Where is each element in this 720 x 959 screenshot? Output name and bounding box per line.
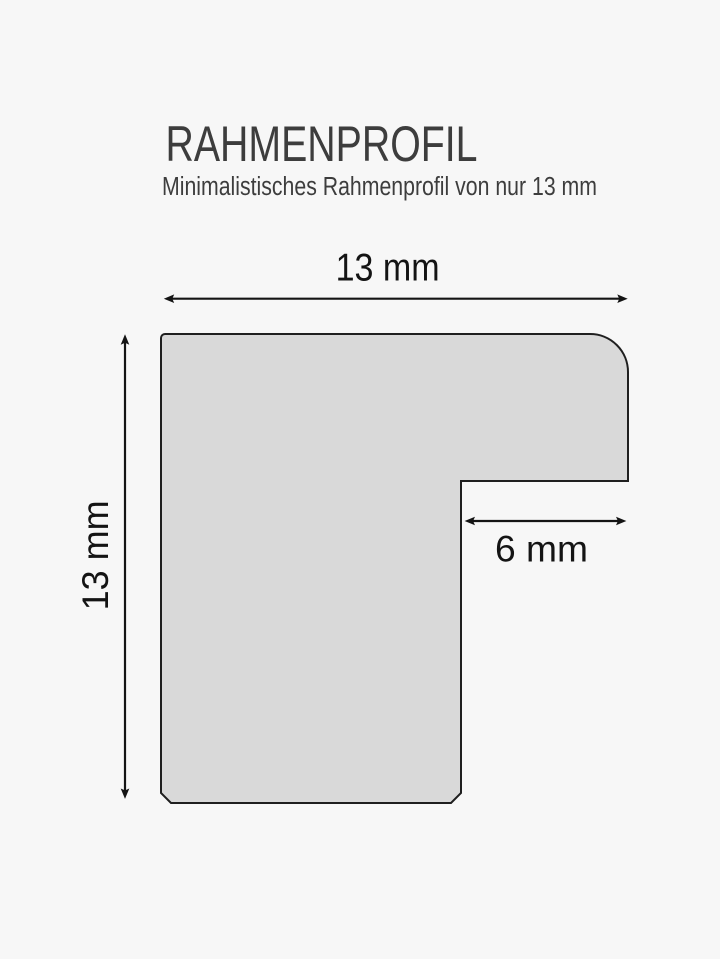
svg-text:RAHMENPROFIL: RAHMENPROFIL — [166, 116, 478, 172]
svg-text:Minimalistisches Rahmenprofil: Minimalistisches Rahmenprofil von nur 13… — [162, 173, 597, 201]
svg-text:13 mm: 13 mm — [336, 247, 440, 290]
svg-text:13 mm: 13 mm — [75, 500, 116, 610]
svg-text:6 mm: 6 mm — [495, 529, 588, 570]
